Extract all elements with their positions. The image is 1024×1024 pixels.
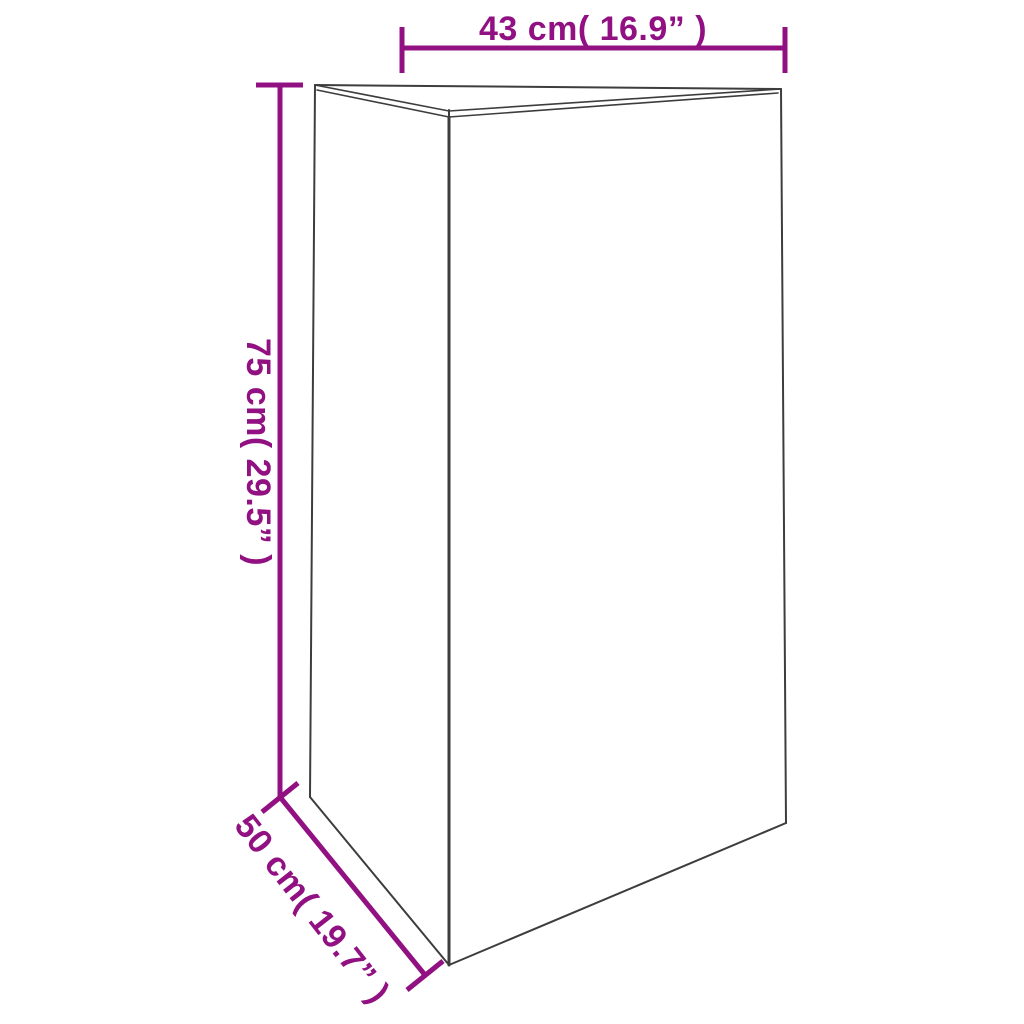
width-dimension-label: 43 cm( 16.9” ) [479,12,707,46]
prism-bottom-right-edge [449,823,786,965]
prism-outline [310,85,786,965]
height-dimension-label: 75 cm( 29.5” ) [241,338,275,566]
prism-right-edge [781,89,786,823]
prism-top-frontright-rim [449,93,778,117]
prism-top-frontleft-rim [317,90,449,117]
diagram-drawing [0,0,1024,1024]
dimension-diagram: 43 cm( 16.9” ) 75 cm( 29.5” ) 50 cm( 19.… [0,0,1024,1024]
prism-top-frontleft-edge [315,85,449,111]
prism-top-back-edge [315,85,781,89]
prism-left-edge [310,85,315,797]
depth-dim-cap-bottom [407,961,443,990]
prism-top-frontright-edge [449,89,781,111]
